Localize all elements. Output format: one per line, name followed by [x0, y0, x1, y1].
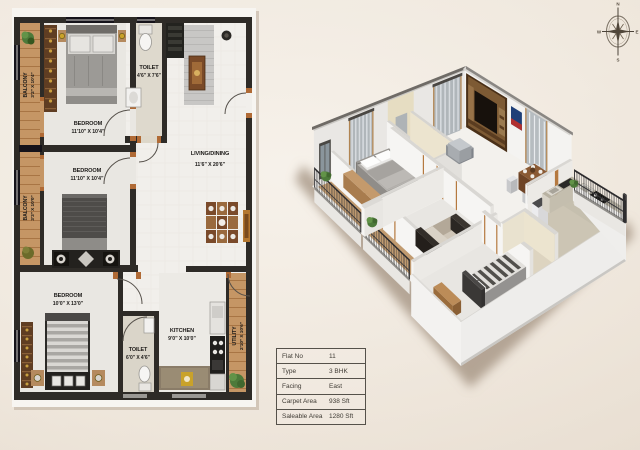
svg-text:TOILET: TOILET: [129, 347, 148, 353]
svg-text:11’6” X 20’6”: 11’6” X 20’6”: [195, 162, 226, 168]
svg-text:E: E: [635, 30, 638, 35]
svg-text:2’10” X 10’6”: 2’10” X 10’6”: [239, 321, 245, 350]
svg-text:3’3” X 10’0”: 3’3” X 10’0”: [30, 195, 36, 221]
svg-text:S: S: [616, 58, 619, 63]
svg-text:N: N: [616, 2, 619, 7]
svg-text:BEDROOM: BEDROOM: [73, 168, 102, 174]
svg-text:TOILET: TOILET: [139, 65, 159, 71]
svg-text:BALCONY: BALCONY: [23, 72, 29, 98]
svg-text:4’6” X 7’6”: 4’6” X 7’6”: [137, 73, 162, 79]
svg-text:BEDROOM: BEDROOM: [54, 293, 83, 299]
svg-text:3’2” X 10’4”: 3’2” X 10’4”: [30, 72, 36, 98]
svg-text:LIVING/DINING: LIVING/DINING: [191, 151, 229, 157]
svg-text:11’10” X 10’4”: 11’10” X 10’4”: [72, 129, 105, 135]
svg-text:BALCONY: BALCONY: [23, 195, 29, 221]
svg-text:KITCHEN: KITCHEN: [170, 328, 194, 334]
svg-text:10’0” X 13’0”: 10’0” X 13’0”: [53, 301, 84, 307]
svg-text:BEDROOM: BEDROOM: [74, 121, 103, 127]
svg-text:W: W: [597, 30, 602, 35]
svg-text:11’10” X 10’4”: 11’10” X 10’4”: [71, 176, 104, 182]
svg-text:9’0” X 10’0”: 9’0” X 10’0”: [168, 336, 196, 342]
svg-text:UTILITY: UTILITY: [232, 326, 238, 346]
svg-text:6’0” X 4’6”: 6’0” X 4’6”: [126, 355, 151, 361]
